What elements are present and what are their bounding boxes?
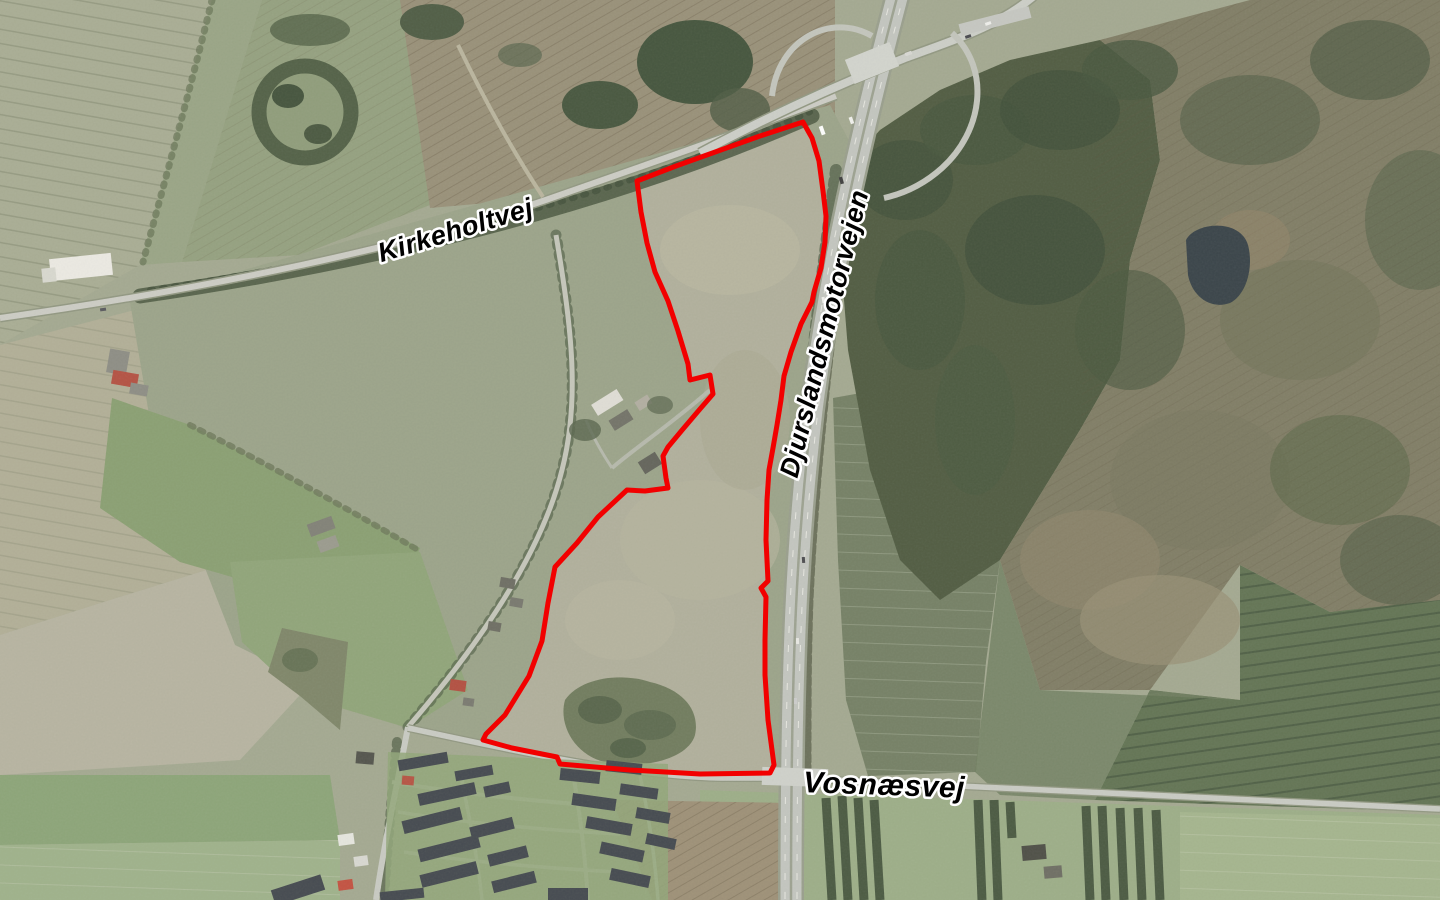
aerial-map-canvas: Kirkeholtvej Djurslandsmotorvejen Vosnæs… bbox=[0, 0, 1440, 900]
label-vosnaesvej: Vosnæsvej bbox=[803, 766, 966, 805]
photo-haze bbox=[0, 0, 1440, 900]
aerial-map: Kirkeholtvej Djurslandsmotorvejen Vosnæs… bbox=[0, 0, 1440, 900]
